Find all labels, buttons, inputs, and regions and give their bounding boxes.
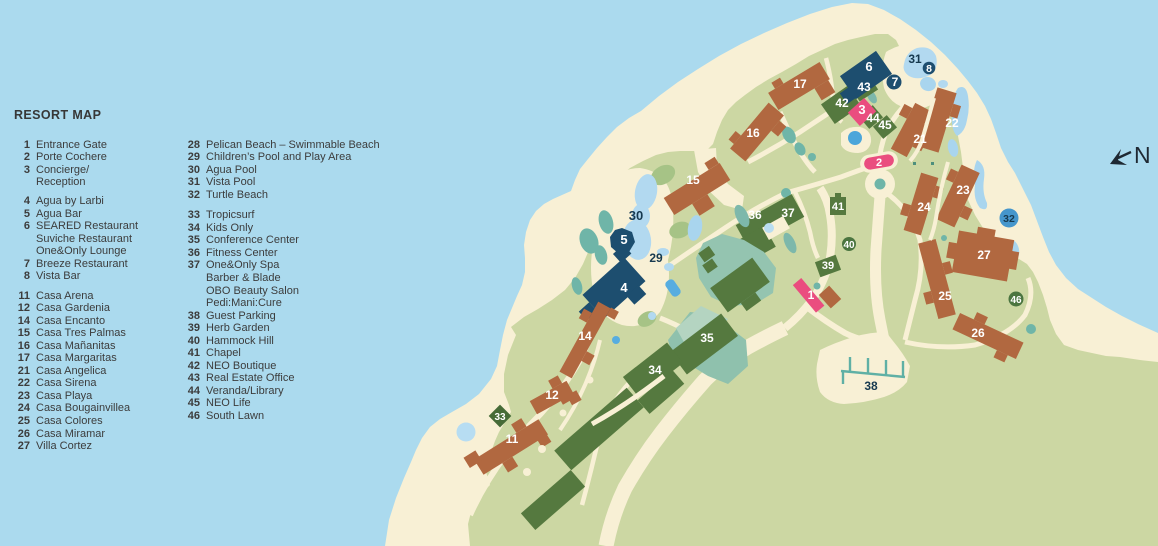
- svg-text:34: 34: [648, 363, 662, 377]
- svg-text:33: 33: [494, 412, 506, 423]
- svg-text:16: 16: [746, 126, 760, 140]
- svg-text:15: 15: [686, 173, 700, 187]
- svg-text:29: 29: [649, 251, 663, 265]
- svg-text:43: 43: [857, 80, 871, 94]
- svg-text:6: 6: [865, 59, 872, 74]
- svg-text:21: 21: [913, 132, 927, 146]
- svg-text:12: 12: [545, 388, 559, 402]
- svg-text:45: 45: [878, 118, 892, 132]
- svg-text:42: 42: [835, 96, 849, 110]
- svg-text:31: 31: [908, 52, 922, 66]
- svg-text:23: 23: [956, 183, 970, 197]
- svg-text:38: 38: [864, 379, 878, 393]
- svg-text:40: 40: [843, 240, 855, 251]
- svg-text:7: 7: [892, 75, 899, 89]
- svg-text:2: 2: [876, 157, 882, 169]
- svg-text:17: 17: [793, 77, 807, 91]
- svg-text:37: 37: [781, 206, 795, 220]
- svg-text:1: 1: [808, 288, 815, 302]
- svg-text:26: 26: [971, 326, 985, 340]
- svg-text:3: 3: [858, 102, 865, 117]
- svg-text:22: 22: [945, 116, 959, 130]
- svg-text:46: 46: [1010, 295, 1022, 306]
- svg-text:41: 41: [832, 201, 844, 213]
- svg-text:27: 27: [977, 248, 991, 262]
- svg-text:N: N: [1134, 142, 1151, 168]
- svg-text:39: 39: [822, 260, 834, 272]
- svg-text:24: 24: [917, 200, 931, 214]
- svg-text:25: 25: [938, 289, 952, 303]
- svg-text:14: 14: [578, 329, 592, 343]
- svg-text:4: 4: [620, 280, 628, 295]
- svg-text:32: 32: [1003, 213, 1015, 225]
- svg-text:36: 36: [748, 208, 762, 222]
- svg-text:35: 35: [700, 331, 714, 345]
- svg-text:11: 11: [506, 432, 519, 446]
- svg-text:8: 8: [926, 63, 932, 75]
- svg-text:30: 30: [629, 208, 643, 223]
- svg-text:5: 5: [620, 232, 627, 247]
